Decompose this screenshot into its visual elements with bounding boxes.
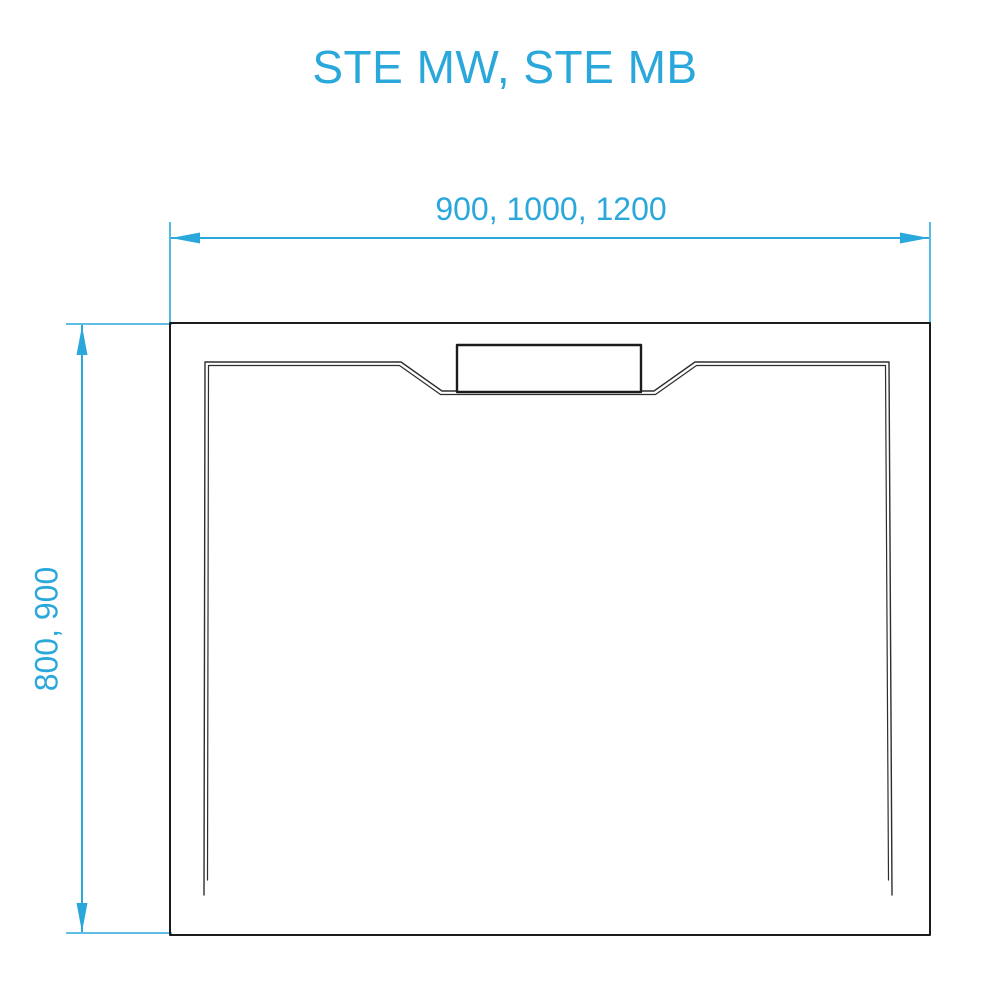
tray-outer-rectangle xyxy=(170,323,930,935)
inner-rim-outer-line xyxy=(204,362,892,895)
arrow-down-icon xyxy=(77,903,88,932)
tray-outline xyxy=(170,323,930,935)
drawing-canvas: STE MW, STE MB 900, 1000, 1200 800, 900 xyxy=(0,0,1000,1000)
drain-cover xyxy=(457,345,641,392)
height-dimension-label: 800, 900 xyxy=(29,567,66,692)
tray-drawing xyxy=(0,0,1000,1000)
inner-rim-inner-line xyxy=(208,366,889,881)
width-dimension-label: 900, 1000, 1200 xyxy=(435,191,666,228)
arrow-left-icon xyxy=(171,233,200,244)
arrow-up-icon xyxy=(77,326,88,355)
arrow-right-icon xyxy=(900,233,929,244)
dimension-lines xyxy=(66,222,930,933)
page-title: STE MW, STE MB xyxy=(312,40,697,94)
